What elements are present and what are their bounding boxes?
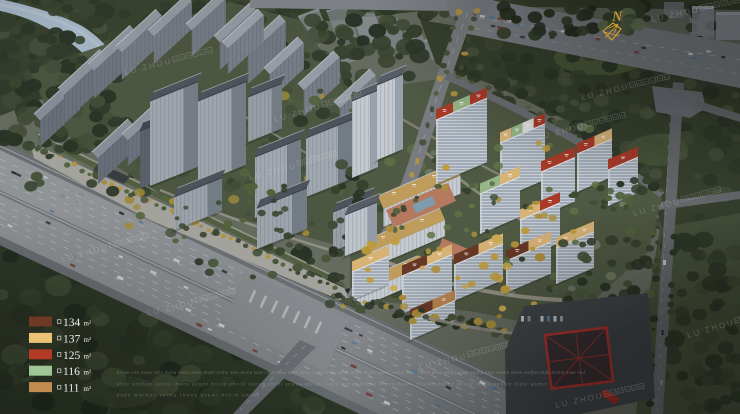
svg-text:m²: m² [84, 369, 92, 377]
svg-text:snde wmthan seimu thwns deamt: snde wmthan seimu thwns deamt hnsiw emut… [117, 382, 548, 387]
svg-text:bcnse iuth ewna sdro thens mwi: bcnse iuth ewna sdro thens mwici anet os… [117, 370, 586, 375]
svg-text:m²: m² [84, 385, 92, 393]
svg-text:m²: m² [84, 352, 92, 360]
svg-text:134: 134 [63, 317, 81, 329]
svg-text:m²: m² [84, 336, 92, 344]
svg-text:137: 137 [63, 333, 81, 345]
svg-text:125: 125 [63, 350, 81, 362]
svg-text:116: 116 [63, 366, 80, 378]
svg-text:111: 111 [63, 383, 80, 395]
svg-text:m²: m² [84, 320, 92, 328]
